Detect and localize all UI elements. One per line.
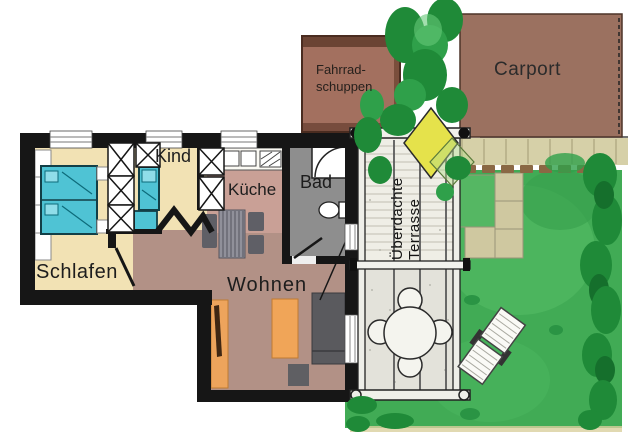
label-bike-shed-line2: schuppen [316, 78, 372, 95]
double-bed [41, 166, 97, 234]
label-kind: Kind [155, 146, 191, 167]
label-wohnen: Wohnen [227, 274, 307, 297]
label-bike-shed-line1: Fahrrad- [316, 61, 372, 78]
label-carport: Carport [494, 59, 561, 81]
window [221, 131, 257, 148]
label-bike-shed: Fahrrad- schuppen [316, 61, 372, 95]
stove [260, 151, 281, 167]
toilet [319, 202, 339, 218]
sofa [312, 293, 345, 364]
label-covered-terrace-line1: Überdachte [389, 150, 406, 260]
round-table [384, 307, 436, 359]
label-covered-terrace: Überdachte Terrasse [389, 150, 423, 260]
label-covered-terrace-line2: Terrasse [406, 150, 423, 260]
label-kueche: Küche [228, 180, 276, 200]
sink-basin [224, 151, 239, 166]
label-bad: Bad [300, 172, 332, 193]
floor-plan: Schlafen Kind Küche Bad Wohnen Fahrrad- … [0, 0, 640, 440]
kitchen-counter [220, 148, 284, 170]
sink-basin [241, 151, 256, 166]
garden-paved-path [458, 173, 523, 258]
window [50, 131, 92, 148]
planting-bed [458, 175, 495, 227]
closet [199, 148, 224, 210]
side-table [288, 364, 309, 386]
coffee-table [272, 299, 298, 358]
post [459, 128, 470, 139]
post [463, 258, 470, 271]
label-schlafen: Schlafen [36, 261, 118, 284]
post [350, 258, 357, 271]
terrace-beam [350, 261, 470, 269]
post [459, 390, 469, 400]
closet [108, 143, 134, 232]
dresser-kind [134, 211, 157, 230]
